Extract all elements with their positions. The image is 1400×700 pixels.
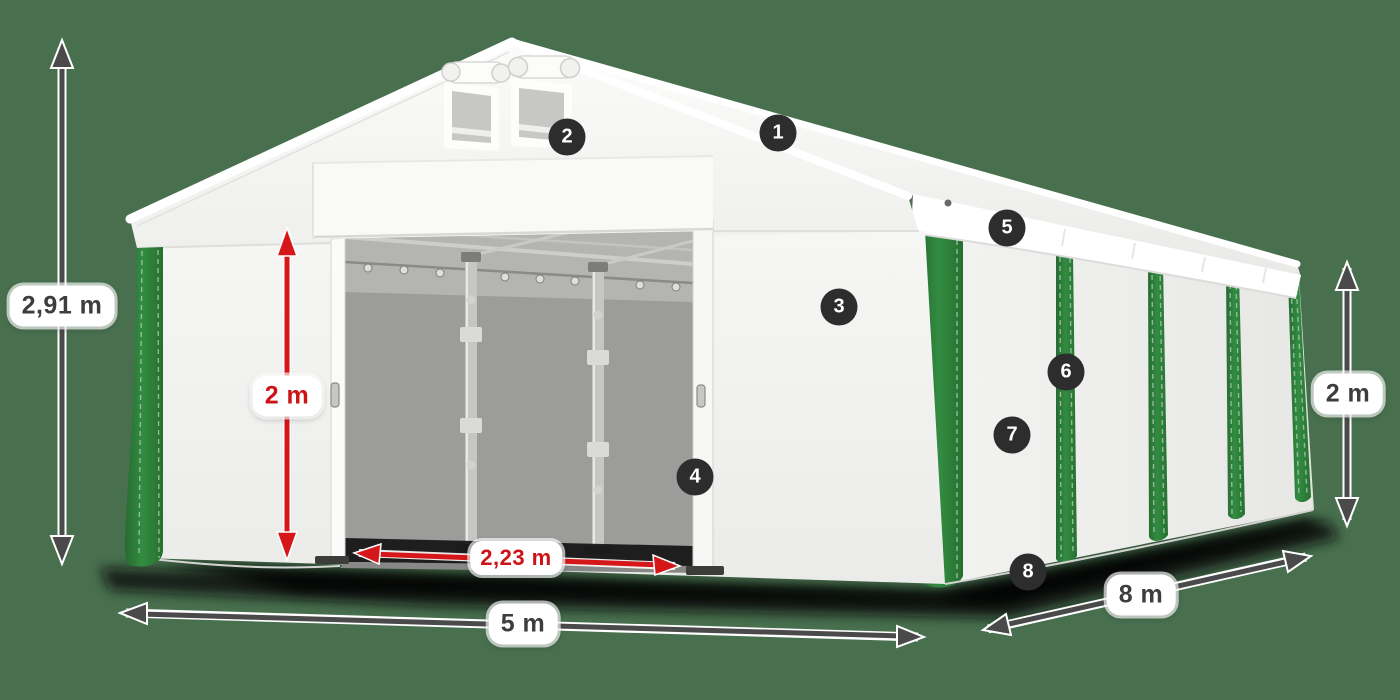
door-lintel-beam	[313, 155, 713, 239]
door-handle-left	[331, 383, 339, 407]
tent-drawing	[0, 0, 1400, 700]
feature-marker-2: 2	[549, 119, 586, 156]
feature-marker-5: 5	[989, 210, 1026, 247]
feature-marker-1: 1	[760, 115, 797, 152]
eave-hook	[945, 200, 952, 207]
tent-product-illustration: 2,91 m 2 m 2,23 m 5 m 8 m 2 m 1 2 3 4 5 …	[0, 0, 1400, 700]
dimension-label-front-width: 5 m	[489, 604, 558, 645]
dimension-label-wall-height: 2 m	[1314, 374, 1383, 415]
feature-marker-3: 3	[821, 289, 858, 326]
dimension-label-door-width: 2,23 m	[470, 541, 562, 575]
feature-marker-6: 6	[1048, 354, 1085, 391]
feature-marker-4: 4	[677, 459, 714, 496]
dimension-label-total-height: 2,91 m	[10, 286, 115, 327]
tent-interior	[340, 215, 700, 575]
dimension-label-door-height: 2 m	[253, 376, 322, 417]
door-handle-right	[697, 385, 705, 407]
feature-marker-8: 8	[1010, 554, 1047, 591]
front-corner-green-stripe	[125, 247, 163, 567]
feature-marker-7: 7	[994, 417, 1031, 454]
dimension-label-side-length: 8 m	[1107, 575, 1176, 616]
